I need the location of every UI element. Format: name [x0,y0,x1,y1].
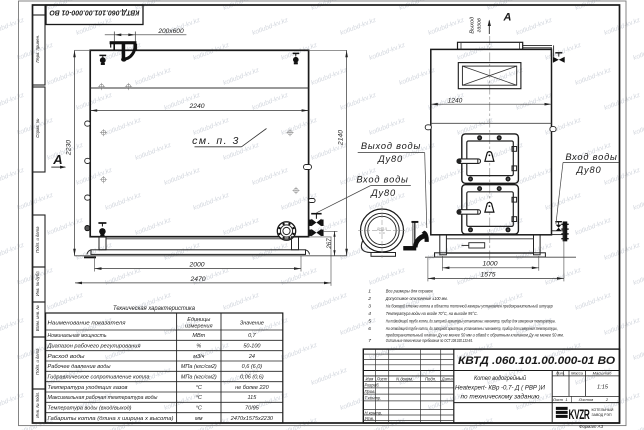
svg-text:Гидравлическое сопротивление к: Гидравлическое сопротивление котла [48,375,150,381]
svg-text:Температура воды (вход/выход): Температура воды (вход/выход) [48,406,132,412]
svg-text:Выход: Выход [470,17,476,34]
svg-text:по техническому заданию: по техническому заданию [461,393,540,401]
svg-text:2000: 2000 [188,261,204,268]
svg-text:1: 1 [368,288,371,294]
svg-text:°С: °С [196,406,202,412]
svg-text:Все размеры для справок: Все размеры для справок [386,288,434,294]
svg-text:Справ. №: Справ. № [35,118,40,137]
svg-text:N докум.: N докум. [396,376,413,381]
svg-text:°С: °С [196,395,202,401]
svg-text:Пров.: Пров. [365,389,376,394]
svg-text:А: А [52,152,62,167]
svg-text:115: 115 [248,395,258,401]
svg-text:На отводящей трубе котла, до: На отводящей трубе котла, до запорной ар… [386,325,558,332]
svg-text:Максимальная рабочая температу: Максимальная рабочая температура воды [48,395,158,401]
svg-text:Допустимое отклонение ±100 мм: Допустимое отклонение ±100 мм. [385,296,448,302]
svg-text:МПа (кгс/см2): МПа (кгс/см2) [181,375,217,381]
svg-text:мм: мм [195,416,203,422]
svg-text:Формат А3: Формат А3 [579,424,604,429]
svg-text:Котел водогрейный: Котел водогрейный [474,374,526,382]
svg-text:Диапазон рабочего регулировани: Диапазон рабочего регулирования [46,344,140,350]
svg-text:Значение: Значение [240,320,264,326]
svg-text:Вход воды: Вход воды [565,152,617,162]
svg-text:Температура воды на входе 70°: Температура воды на входе 70°С, на выход… [386,311,478,317]
svg-text:2470х1575х2230: 2470х1575х2230 [230,416,274,422]
svg-text:Масштаб: Масштаб [593,371,612,376]
svg-text:Т.контр.: Т.контр. [365,395,382,400]
svg-text:предохранительный клапан Ду н: предохранительный клапан Ду не менее 50 … [386,332,564,339]
svg-text:0,06 (0,6): 0,06 (0,6) [240,375,264,381]
svg-text:Вход воды: Вход воды [356,175,408,185]
svg-text:Рабочее давление воды: Рабочее давление воды [48,364,111,370]
svg-text:На подводящей трубе котла, до: На подводящей трубе котла, до запорной а… [386,317,556,324]
svg-text:Перв. примен.: Перв. примен. [35,35,40,63]
svg-text:Ду80: Ду80 [370,188,396,198]
svg-text:Ду80: Ду80 [377,154,403,164]
svg-text:267: 267 [326,238,333,250]
svg-text:Лист: Лист [552,397,564,402]
svg-text:2470: 2470 [189,276,205,283]
svg-text:Утв.: Утв. [365,416,375,421]
svg-text:Подп.: Подп. [425,376,436,381]
svg-text:газов: газов [476,18,482,32]
svg-text:Разраб.: Разраб. [365,383,380,388]
svg-text:24: 24 [248,354,255,360]
svg-text:%: % [196,344,201,350]
svg-text:4: 4 [368,311,371,317]
svg-text:1:15: 1:15 [597,384,609,390]
svg-text:2140: 2140 [337,130,344,146]
svg-text:1000: 1000 [482,261,497,268]
svg-text:1575: 1575 [480,271,495,278]
svg-text:Температура уходящих газов: Температура уходящих газов [48,385,128,391]
svg-text:2240: 2240 [188,103,204,110]
svg-text:МПа (кгс/см2): МПа (кгс/см2) [181,364,217,370]
svg-text:Листов: Листов [578,397,594,402]
svg-text:Ду80: Ду80 [576,165,602,175]
svg-text:А: А [503,11,512,23]
svg-text:Расход воды: Расход воды [48,354,85,360]
svg-text:2230: 2230 [65,140,72,156]
svg-text:Остальные технические требован: Остальные технические требования по ОСТ … [386,338,473,344]
svg-text:Подп. и дата: Подп. и дата [35,348,40,375]
svg-text:5: 5 [368,318,371,324]
svg-text:0,7: 0,7 [248,333,257,339]
svg-text:Выход воды: Выход воды [361,141,421,151]
svg-text:Наименование показателя: Наименование показателя [48,320,126,326]
svg-text:Н.контр.: Н.контр. [365,410,383,415]
svg-text:Дата: Дата [441,376,454,381]
svg-text:KVZR: KVZR [569,407,590,422]
svg-text:Лит.: Лит. [555,371,565,376]
svg-text:Габариты котла (длина х ширина: Габариты котла (длина х ширина х высота) [48,416,174,422]
svg-text:Инв. № подл.: Инв. № подл. [35,392,40,418]
svg-text:6: 6 [368,326,371,332]
svg-text:Техническая характеристика: Техническая характеристика [113,305,196,312]
svg-text:КОТЕЛЬНЫЙ: КОТЕЛЬНЫЙ [592,408,614,412]
svg-text:см. п. 3: см. п. 3 [192,135,240,147]
svg-text:м3/ч: м3/ч [193,354,204,360]
svg-text:70/95: 70/95 [245,406,260,412]
svg-text:50-100: 50-100 [243,344,261,350]
svg-text:На боковой стенке котла в обла: На боковой стенке котла в области топочн… [386,302,553,309]
svg-text:Взам. инв. №: Взам. инв. № [35,305,40,331]
svg-text:2: 2 [367,296,371,302]
svg-text:Единицы: Единицы [187,317,210,323]
svg-text:не более 220: не более 220 [235,385,270,391]
svg-text:°С: °С [196,385,202,391]
svg-text:измерения: измерения [185,324,213,330]
svg-text:3: 3 [368,303,371,309]
svg-text:1: 1 [565,397,567,402]
svg-text:Лист: Лист [376,376,388,381]
svg-text:Масса: Масса [571,371,584,376]
svg-text:7: 7 [368,338,371,344]
svg-text:0,6 (6,0): 0,6 (6,0) [242,364,263,370]
svg-text:Инв. № дубл.: Инв. № дубл. [35,270,40,296]
svg-text:МВт: МВт [192,333,205,339]
svg-text:Номинальная мощность: Номинальная мощность [48,333,107,339]
svg-text:Heatexpert- КВр -0,7- Д ( РВР: Heatexpert- КВр -0,7- Д ( РВР )И [455,385,545,392]
svg-text:Изм: Изм [366,376,374,381]
svg-text:КВТД.060.101.00.000-01 ВО: КВТД.060.101.00.000-01 ВО [49,8,139,17]
svg-text:КВТД .060.101.00.000-01 ВО: КВТД .060.101.00.000-01 ВО [458,355,615,367]
svg-text:200х600: 200х600 [157,28,184,35]
svg-text:1240: 1240 [448,97,463,104]
svg-text:ЗАВОД РЭП: ЗАВОД РЭП [592,413,613,417]
svg-text:Подп. и дата: Подп. и дата [35,226,40,253]
